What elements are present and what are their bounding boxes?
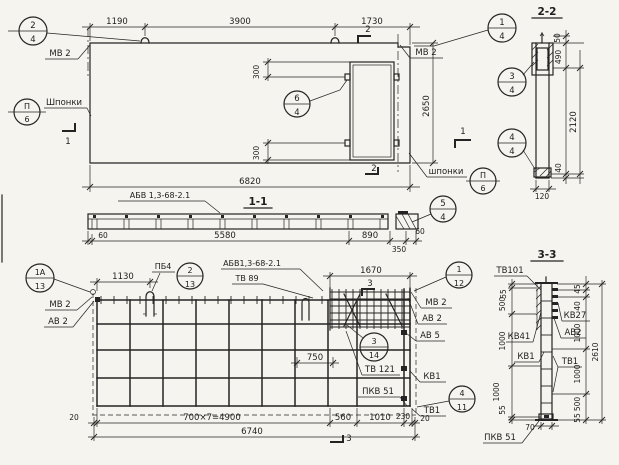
callout-1-12: 1 12 — [414, 262, 472, 291]
svg-text:3: 3 — [371, 337, 376, 346]
section-mark-3-bottom: 3 — [331, 434, 352, 444]
svg-text:шпонки: шпонки — [429, 167, 464, 177]
svg-text:МВ 2: МВ 2 — [425, 298, 446, 308]
svg-text:4: 4 — [509, 147, 514, 157]
section-2-2-view: 2-2 50 — [498, 6, 584, 201]
svg-text:4: 4 — [294, 108, 299, 118]
svg-text:КВ41: КВ41 — [508, 332, 531, 342]
svg-text:4: 4 — [30, 35, 35, 45]
svg-text:13: 13 — [35, 282, 45, 291]
svg-text:13: 13 — [185, 280, 195, 289]
svg-text:560: 560 — [335, 413, 351, 423]
dim-120: 120 — [530, 180, 556, 201]
svg-text:50: 50 — [553, 33, 562, 43]
section-3-3-view: 3-3 ТВ101 — [483, 249, 606, 443]
svg-text:6: 6 — [480, 184, 485, 193]
dim-70: 70 — [525, 422, 559, 432]
svg-text:5580: 5580 — [214, 231, 236, 241]
svg-text:2: 2 — [371, 164, 376, 174]
svg-text:490: 490 — [554, 50, 563, 65]
section-2-2-title: 2-2 — [538, 6, 557, 18]
callout-1a-13: 1А 13 — [26, 264, 90, 292]
label-av5: АВ 5 — [406, 331, 445, 341]
svg-text:6: 6 — [24, 115, 29, 124]
label-kv1-plan: КВ1 — [410, 371, 446, 382]
dim-750: 750 — [291, 353, 339, 368]
svg-text:4: 4 — [509, 133, 514, 143]
svg-text:5: 5 — [440, 199, 445, 209]
lifting-loop-icon — [141, 38, 149, 43]
label-mv2-plan-left: МВ 2 — [45, 297, 92, 310]
svg-text:55: 55 — [573, 413, 582, 423]
svg-text:60: 60 — [415, 227, 425, 236]
svg-text:П: П — [480, 171, 486, 180]
svg-text:1000: 1000 — [573, 323, 582, 342]
svg-text:70: 70 — [525, 423, 535, 432]
plate-left-hatch — [536, 284, 541, 330]
svg-text:АВ 2: АВ 2 — [422, 314, 442, 324]
svg-text:1000: 1000 — [573, 364, 582, 383]
svg-text:АБВ1,3-68-2.1: АБВ1,3-68-2.1 — [223, 259, 281, 268]
callout-3-4: 3 4 — [498, 62, 534, 96]
dim-300-top: 300 — [252, 58, 350, 81]
svg-text:12: 12 — [454, 279, 464, 288]
svg-text:6740: 6740 — [241, 427, 263, 437]
section-mark-2-bottom: 2 — [366, 164, 378, 174]
svg-text:1000: 1000 — [492, 382, 501, 401]
label-kv41: КВ41 — [506, 312, 541, 342]
svg-text:2120: 2120 — [569, 111, 579, 133]
label-pkv51-plan: ПКВ 51 — [358, 387, 407, 406]
svg-text:300: 300 — [252, 65, 261, 80]
callout-5-4: 5 4 — [412, 196, 456, 223]
callout-3-14: 3 14 — [347, 325, 388, 361]
svg-text:3: 3 — [367, 279, 372, 289]
svg-text:1670: 1670 — [360, 266, 382, 276]
svg-text:20: 20 — [420, 414, 430, 423]
section-1-1-title: 1-1 — [249, 196, 268, 208]
ribs — [92, 219, 380, 229]
svg-text:1А: 1А — [35, 268, 46, 277]
label-pb4: ПБ4 — [152, 262, 175, 291]
section-mark-1-left: 1 — [63, 124, 75, 147]
svg-text:2650: 2650 — [422, 95, 432, 117]
label-tv101: ТВ101 — [494, 266, 541, 290]
svg-text:МВ 2: МВ 2 — [49, 300, 70, 310]
dim-plan-bottom: 20 700×7=4900 560 1010 230 20 6740 — [69, 408, 430, 441]
label-kv1-33: КВ1 — [514, 352, 544, 362]
dim-300-bottom: 300 — [252, 139, 350, 164]
svg-text:6: 6 — [294, 94, 299, 104]
svg-text:1: 1 — [65, 137, 70, 147]
callout-1-4: 1 4 — [414, 14, 516, 46]
svg-text:11: 11 — [457, 403, 467, 412]
lifting-loop-icon — [331, 38, 339, 43]
svg-text:890: 890 — [362, 231, 378, 241]
svg-text:55: 55 — [498, 405, 507, 415]
label-abv-1-1: АБВ 1,3-68-2.1 — [118, 191, 220, 213]
dim-2-2-chain: 50 490 40 2120 — [551, 30, 584, 184]
svg-text:АБВ 1,3-68-2.1: АБВ 1,3-68-2.1 — [130, 191, 190, 200]
svg-text:4: 4 — [459, 389, 464, 398]
svg-text:АВ 5: АВ 5 — [420, 331, 440, 341]
label-mv2-left: МВ 2 — [45, 45, 90, 59]
svg-text:4: 4 — [440, 213, 445, 223]
callout-2-13: 2 13 — [177, 263, 203, 289]
svg-text:МВ 2: МВ 2 — [49, 49, 70, 59]
panel-elevation-view: 1190 3900 1730 6820 2650 300 — [2, 14, 516, 262]
dim-3900: 3900 — [229, 17, 251, 27]
svg-text:20: 20 — [69, 413, 79, 422]
dim-3-3-right: 45 40 1000 1000 500 55 2610 — [552, 276, 606, 424]
section-mark-3-top: 3 — [362, 279, 374, 295]
svg-text:4: 4 — [509, 86, 514, 96]
dim-2650: 2650 — [412, 40, 438, 166]
svg-text:КВ1: КВ1 — [423, 372, 440, 382]
svg-text:500: 500 — [573, 397, 582, 412]
svg-text:МВ 2: МВ 2 — [415, 48, 436, 58]
dim-1130: 1130 — [90, 272, 158, 291]
svg-text:2: 2 — [30, 21, 35, 31]
lifting-loop-icon — [302, 299, 309, 321]
section-mark-2-top: 2 — [358, 25, 371, 42]
blueprint-canvas: 1190 3900 1730 6820 2650 300 — [0, 0, 619, 465]
dim-1190: 1190 — [106, 17, 128, 27]
svg-text:3: 3 — [346, 434, 351, 444]
label-keys-left: Шпонки — [44, 98, 91, 116]
svg-text:1000: 1000 — [498, 331, 507, 350]
svg-text:ТВ101: ТВ101 — [495, 266, 523, 276]
svg-text:120: 120 — [535, 192, 550, 201]
svg-text:Шпонки: Шпонки — [46, 98, 82, 108]
callout-p6-left: П 6 — [8, 99, 46, 125]
svg-text:45: 45 — [573, 284, 582, 294]
svg-text:КВ1: КВ1 — [517, 352, 534, 362]
svg-text:ПБ4: ПБ4 — [155, 262, 172, 271]
label-tv89: ТВ 89 — [232, 274, 313, 298]
embed-channel-top — [532, 33, 553, 75]
svg-text:300: 300 — [252, 146, 261, 161]
door-opening — [345, 62, 399, 160]
svg-text:1010: 1010 — [369, 413, 391, 423]
svg-text:ТВ 89: ТВ 89 — [234, 274, 258, 283]
svg-text:2: 2 — [187, 266, 192, 275]
label-mv2-plan-right: МВ 2 — [411, 292, 452, 308]
reinforcement-plan-view: 1130 1670 750 1А 13 ПБ4 2 — [26, 259, 475, 444]
svg-text:П: П — [24, 102, 30, 111]
svg-text:КВ27: КВ27 — [564, 311, 587, 321]
svg-text:2610: 2610 — [591, 342, 600, 361]
drawing-sheet: 1190 3900 1730 6820 2650 300 — [0, 0, 619, 465]
section-mark-1-right: 1 — [455, 127, 470, 147]
dim-6820: 6820 — [82, 165, 420, 192]
ladder-ties — [541, 301, 552, 403]
svg-text:1130: 1130 — [112, 272, 134, 282]
svg-text:2: 2 — [365, 25, 370, 35]
svg-text:750: 750 — [307, 353, 323, 363]
svg-text:4: 4 — [499, 32, 504, 42]
dim-1-1-chain: 60 5580 890 350 60 — [82, 227, 425, 254]
svg-text:60: 60 — [98, 231, 108, 240]
svg-text:ПКВ 51: ПКВ 51 — [484, 433, 516, 443]
svg-text:230: 230 — [396, 412, 411, 421]
svg-text:14: 14 — [369, 351, 379, 360]
svg-text:3: 3 — [509, 72, 514, 82]
svg-text:ПКВ 51: ПКВ 51 — [362, 387, 394, 397]
section-1-1-view: 1-1 АБВ 1,3-68-2.1 — [82, 191, 425, 254]
svg-text:1: 1 — [499, 18, 504, 28]
callout-p6-right: П 6 — [466, 168, 500, 194]
label-keys-right: шпонки — [409, 153, 467, 177]
svg-text:700×7=4900: 700×7=4900 — [183, 413, 241, 423]
svg-text:1: 1 — [456, 265, 461, 274]
callout-4-4: 4 4 — [498, 129, 535, 169]
svg-text:40: 40 — [573, 301, 582, 311]
section-3-3-title: 3-3 — [538, 249, 557, 261]
svg-text:350: 350 — [392, 245, 407, 254]
svg-text:ТВ 121: ТВ 121 — [364, 365, 395, 375]
svg-text:1: 1 — [460, 127, 465, 137]
svg-text:40: 40 — [554, 163, 563, 173]
svg-text:АВ 2: АВ 2 — [48, 317, 68, 327]
callout-6-4: 6 4 — [284, 80, 347, 118]
svg-text:6820: 6820 — [239, 177, 261, 187]
svg-text:500: 500 — [498, 297, 507, 312]
